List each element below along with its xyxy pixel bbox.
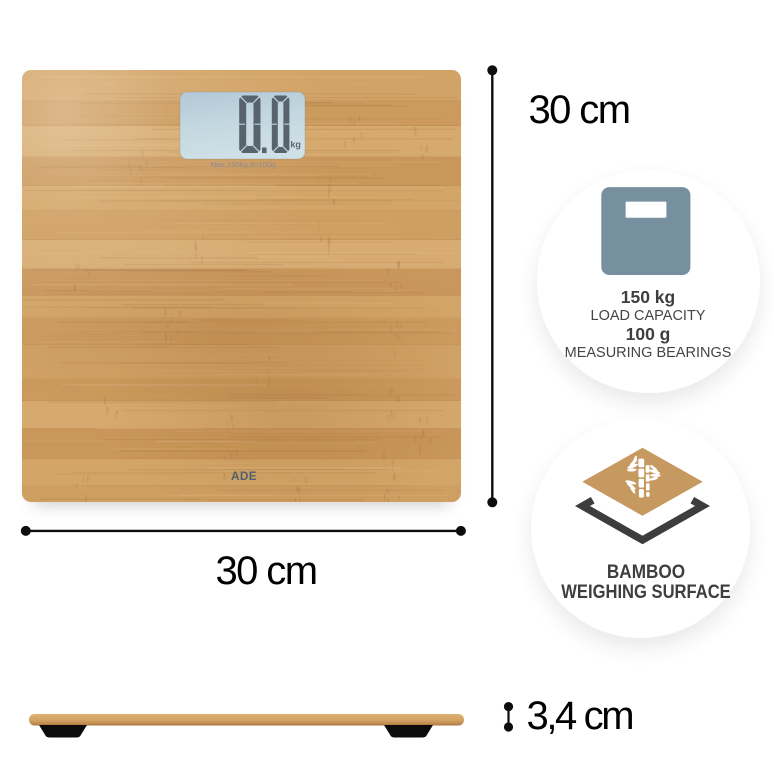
svg-text:kg: kg — [290, 140, 301, 150]
svg-text:Max.150kg d=100g: Max.150kg d=100g — [211, 160, 276, 169]
svg-text:ADE: ADE — [231, 469, 257, 483]
